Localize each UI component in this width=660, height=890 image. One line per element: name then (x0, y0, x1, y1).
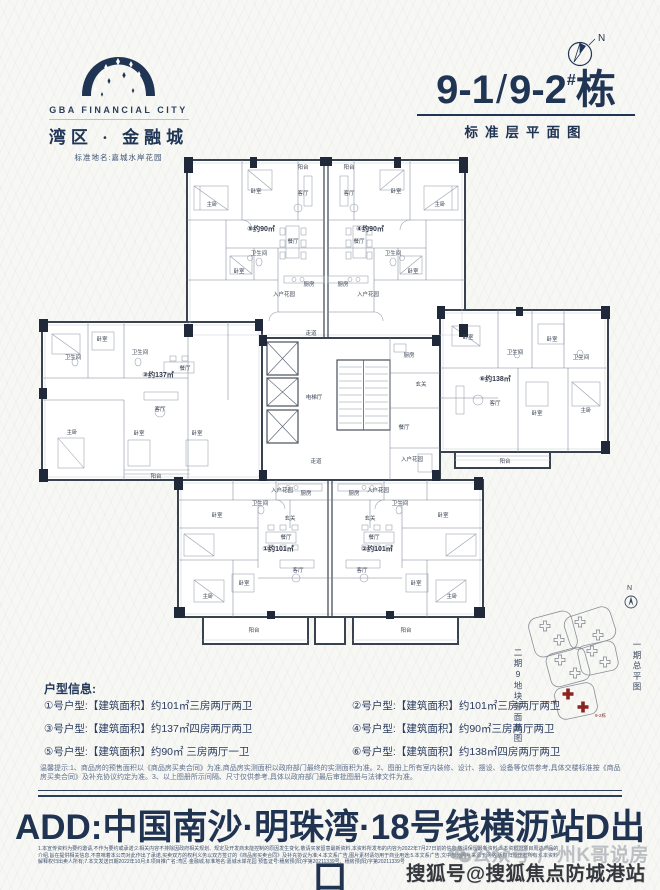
title-block: 9-1/9-2#栋 标准层平面图 (415, 70, 637, 141)
room-label-bedroom: 卧室 (462, 333, 474, 341)
north-compass-icon: N (556, 30, 616, 72)
room-label-corridor: 走道 (305, 329, 317, 337)
legend-heading: 户型信息: (44, 680, 96, 697)
room-label-entry-garden: 入户花园 (271, 486, 294, 494)
room-label-balcony: 阳台 (297, 163, 309, 171)
room-label-living: 客厅 (292, 566, 304, 574)
arch-stars-icon (36, 26, 201, 98)
compass-n-label: N (598, 33, 605, 44)
title-underline (417, 114, 635, 116)
legend-item-5: ⑤号户型:【建筑面积】约90㎡ 三房两厅一卫 (44, 744, 354, 759)
room-label-dining: 餐厅 (353, 237, 365, 245)
logo-divider (49, 119, 189, 120)
walls-layer (42, 160, 608, 644)
poster-page: GBA FINANCIAL CITY 湾区 · 金融城 标准地名:嘉城水岸花园 … (0, 0, 660, 890)
title-sup: # (567, 72, 576, 89)
room-label-master: 主卧 (66, 428, 78, 436)
room-label-entry-garden: 入户花园 (273, 290, 296, 298)
room-label-balcony: 阳台 (248, 626, 260, 634)
room-label-bath: 卫生间 (573, 353, 590, 361)
room-label-bedroom: 卧室 (211, 511, 223, 519)
room-label-bedroom: 卧室 (250, 187, 262, 195)
room-label-bedroom: 卧室 (96, 335, 108, 343)
room-label-dining: 餐厅 (398, 423, 410, 431)
legend-item-1: ①号户型:【建筑面积】约101㎡三房两厅两卫 (44, 698, 354, 713)
room-label-bedroom: 卧室 (410, 579, 422, 587)
room-label-foyer: 玄关 (415, 380, 427, 388)
sohu-watermark: 搜狐号@搜狐焦点防城港站 (406, 857, 646, 886)
room-label-dining: 餐厅 (179, 364, 191, 372)
room-label-bath: 卫生间 (65, 353, 82, 361)
room-label-kitchen: 厨房 (337, 280, 349, 288)
room-label-bedroom: 卧室 (133, 429, 145, 437)
building-title: 9-1/9-2#栋 (415, 70, 637, 110)
room-label-living: 客厅 (489, 399, 501, 407)
unit-area-label-u4: ④约90㎡ (356, 224, 384, 233)
room-label-kitchen: 厨房 (300, 489, 312, 497)
title-main: 9-1 (436, 68, 494, 112)
room-label-elevator-hall: 电梯厅 (306, 393, 323, 401)
room-label-bath: 卫生间 (392, 499, 409, 507)
room-label-foyer: 玄关 (284, 514, 296, 522)
room-label-entry-garden: 入户花园 (357, 290, 380, 298)
room-label-dining: 餐厅 (280, 533, 292, 541)
brand-name-cn: 湾区 · 金融城 (36, 123, 201, 148)
room-label-entry-garden: 入户花园 (401, 455, 424, 463)
room-label-living: 客厅 (154, 405, 166, 413)
room-label-bedroom: 卧室 (191, 429, 203, 437)
room-label-master: 主卧 (580, 406, 592, 414)
brand-logo: GBA FINANCIAL CITY 湾区 · 金融城 标准地名:嘉城水岸花园 (36, 26, 201, 163)
room-label-living: 客厅 (356, 566, 368, 574)
divider-rule (38, 790, 622, 797)
legend-item-2: ②号户型:【建筑面积】约101㎡三房两厅两卫 (352, 698, 660, 713)
room-label-kitchen: 厨房 (303, 280, 315, 288)
unit-area-label-u6: ⑥约138㎡ (479, 374, 511, 383)
room-label-dining: 餐厅 (368, 533, 380, 541)
room-label-balcony: 阳台 (400, 626, 412, 634)
room-label-balcony: 阳台 (499, 457, 511, 465)
room-label-bedroom: 卧室 (546, 335, 558, 343)
room-label-master: 主卧 (434, 200, 446, 208)
room-label-master: 主卧 (446, 592, 458, 600)
room-label-bath: 卫生间 (385, 249, 402, 257)
site-map-compass-icon: N (625, 585, 637, 608)
room-label-bedroom: 卧室 (407, 267, 419, 275)
room-label-kitchen: 厨房 (348, 489, 360, 497)
tower-label: 9-2栋 (595, 712, 607, 719)
site-map-right-caption: 一期总平图 (631, 640, 643, 693)
unit-area-label-u5: ⑤约90㎡ (247, 224, 275, 233)
legend-item-3: ③号户型:【建筑面积】约137㎡四房两厅两卫 (44, 721, 354, 736)
room-label-master: 主卧 (202, 592, 214, 600)
room-label-living: 客厅 (343, 189, 355, 197)
room-label-dining: 餐厅 (287, 237, 299, 245)
room-label-bedroom: 卧室 (233, 267, 245, 275)
title-slash: / (494, 68, 509, 112)
room-label-kitchen: 厨房 (403, 351, 415, 359)
brand-name-en: GBA FINANCIAL CITY (36, 105, 201, 115)
room-label-bedroom: 卧室 (390, 187, 402, 195)
room-label-corridor: 走道 (310, 457, 322, 465)
legend-item-6: ⑥号户型:【建筑面积】约138㎡四房两厅两卫 (352, 744, 660, 759)
room-label-balcony: 阳台 (343, 163, 355, 171)
unit-area-label-u3: ③约137㎡ (142, 370, 174, 379)
room-label-foyer: 玄关 (364, 514, 376, 522)
plan-subtitle: 标准层平面图 (415, 121, 637, 141)
room-label-bedroom: 卧室 (531, 409, 543, 417)
unit-area-label-u2: ②约101㎡ (361, 544, 393, 553)
site-compass-n: N (627, 585, 632, 592)
room-label-bath: 卫生间 (132, 348, 149, 356)
room-label-bath: 卫生间 (252, 499, 269, 507)
room-label-bath: 卫生间 (507, 348, 524, 356)
room-label-bath: 卫生间 (251, 249, 268, 257)
unit-area-label-u1: ①约101㎡ (262, 544, 294, 553)
room-label-bedroom: 卧室 (238, 579, 250, 587)
title-suffix: 栋 (576, 68, 616, 112)
legend-item-4: ④号户型:【建筑面积】约90㎡三房两厅两卫 (352, 721, 660, 736)
room-label-balcony: 阳台 (150, 472, 162, 480)
room-label-entry-garden: 入户花园 (367, 486, 390, 494)
notice-text: 温馨提示:1、商品房的预售面积以《商品房买卖合同》为准,商品房实测面积以政府部门… (40, 764, 624, 782)
room-label-bedroom: 卧室 (437, 511, 449, 519)
room-label-living: 客厅 (297, 189, 309, 197)
room-label-master: 主卧 (206, 200, 218, 208)
title-second: 9-2 (509, 68, 567, 112)
